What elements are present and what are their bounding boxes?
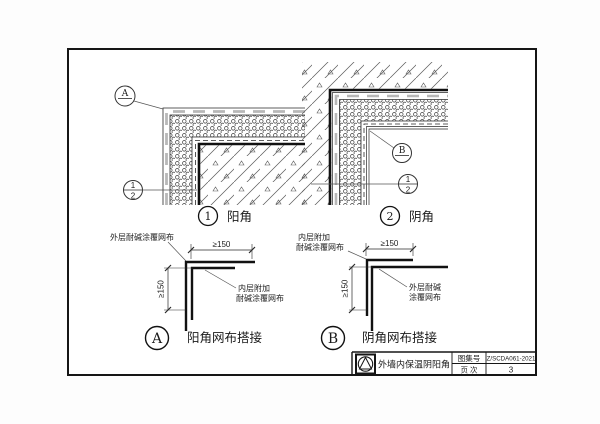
label-inner-mesh-line2: 耐碱涂覆网布: [296, 242, 344, 252]
label-inner-mesh-line1: 内层附加: [238, 283, 270, 293]
detail-title: 阴角: [409, 210, 434, 224]
page-number-label: 页 次: [460, 365, 478, 375]
detail-number: 1: [205, 210, 212, 223]
atlas-number-value: Z/SCDA061-2021: [487, 356, 536, 363]
label-outer-mesh-line2: 涂覆网布: [409, 292, 441, 302]
dim-text-vertical: ≥150: [157, 280, 166, 298]
detail-title: 阴角网布搭接: [362, 330, 438, 345]
ref-number-bottom: 2: [406, 186, 411, 195]
drawing-sheet: A 1 2 1 阳角 B 1 2 2: [0, 0, 600, 424]
label-inner-mesh-line1: 内层附加: [298, 232, 330, 242]
dim-text-horizontal: ≥150: [381, 239, 399, 248]
detail-letter: A: [151, 331, 163, 347]
page-number-value: 3: [509, 366, 514, 375]
atlas-number-label: 图集号: [458, 353, 481, 363]
detail-title: 阳角网布搭接: [187, 330, 263, 345]
dim-text-horizontal: ≥150: [213, 240, 231, 249]
ref-number-top: 1: [131, 181, 136, 190]
drawing-canvas: A 1 2 1 阳角 B 1 2 2: [0, 0, 600, 424]
label-outer-mesh: 外层耐碱涂覆网布: [110, 232, 174, 242]
detail-title: 阳角: [227, 210, 252, 224]
bubble-letter-a: A: [121, 89, 129, 99]
drawing-title: 外墙内保温阴阳角: [378, 359, 450, 370]
detail-number: 2: [387, 210, 394, 223]
detail-letter: B: [328, 331, 338, 347]
concrete-hatch: [200, 145, 305, 205]
ref-number-top: 1: [406, 175, 411, 184]
dim-text-vertical: ≥150: [341, 279, 350, 297]
label-inner-mesh-line2: 耐碱涂覆网布: [236, 293, 284, 303]
bubble-letter-b: B: [399, 146, 406, 156]
ref-number-bottom: 2: [131, 192, 136, 201]
label-outer-mesh-line1: 外层耐碱: [409, 282, 441, 292]
